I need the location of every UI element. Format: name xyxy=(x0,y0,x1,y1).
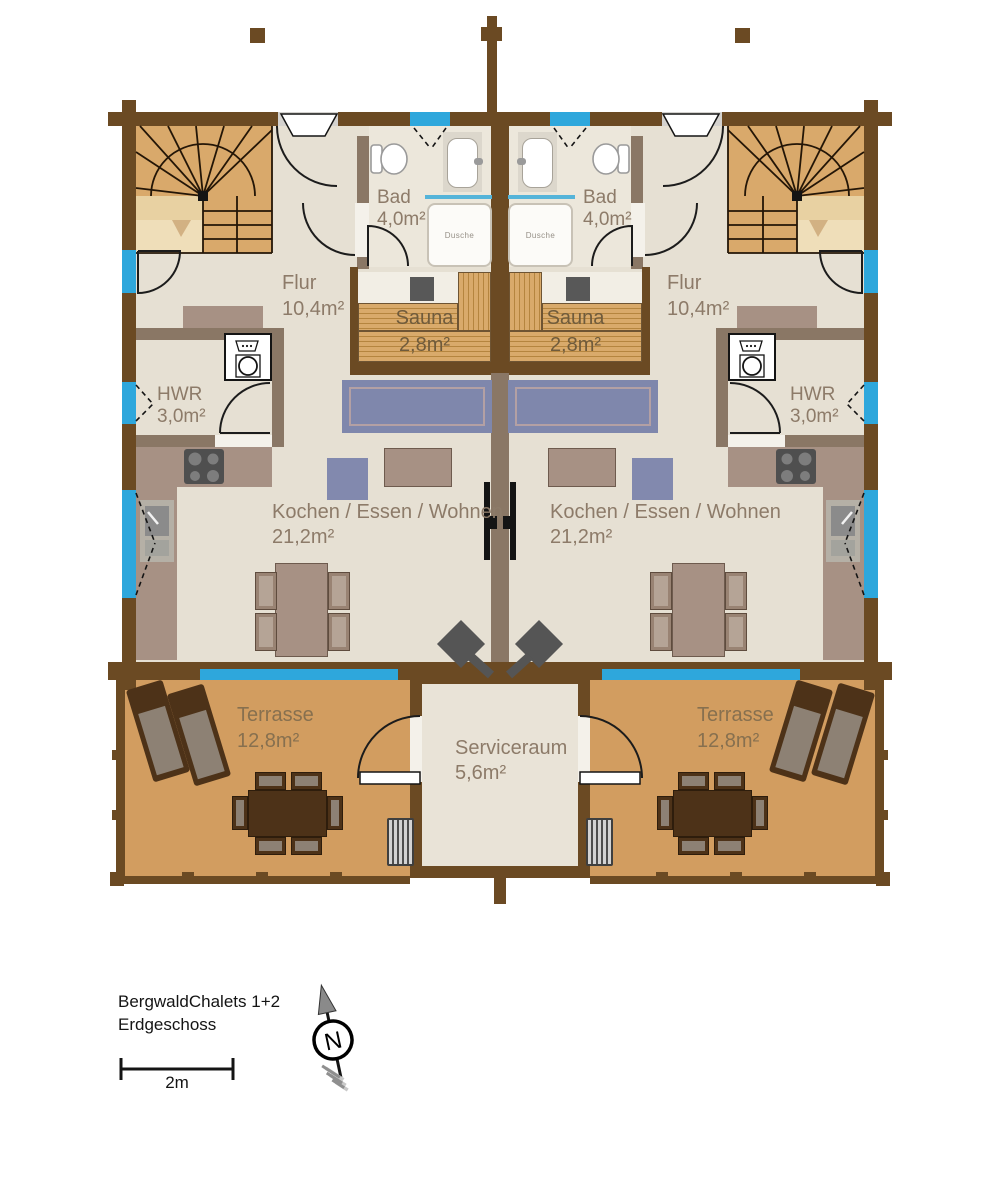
kitchen-sink-drainer xyxy=(831,540,855,556)
sofa-right xyxy=(508,380,658,433)
dining-chair xyxy=(255,613,277,651)
hwr-wall-top-left xyxy=(136,328,284,340)
kitchen-counter-left xyxy=(136,447,272,487)
bath-door-sill-right xyxy=(631,203,645,257)
room-area: 12,8m² xyxy=(237,728,314,754)
terrace-table-left xyxy=(248,790,327,837)
dining-chair xyxy=(725,572,747,610)
room-area: 2,8m² xyxy=(509,332,642,359)
dining-chair xyxy=(255,572,277,610)
dining-table-right xyxy=(672,563,725,657)
floor-plan: Dusche Dusche xyxy=(0,0,1000,1200)
entry-door-sill-right xyxy=(662,112,722,126)
terrace-chair xyxy=(657,796,673,830)
hwr-door-sill-right xyxy=(728,435,785,447)
scale-bar-label: 2m xyxy=(157,1073,197,1093)
sofa-cushion-line xyxy=(515,387,651,426)
terrace-chair xyxy=(714,837,745,855)
sauna-wall-bottom-right xyxy=(509,362,650,375)
kitchen-counter-right xyxy=(728,447,864,487)
chair-seat xyxy=(295,776,318,786)
terrace-table-right xyxy=(673,790,752,837)
side-table-right xyxy=(632,458,673,500)
railing-post xyxy=(112,810,122,820)
sofa-left xyxy=(342,380,492,433)
chair-seat xyxy=(661,800,669,826)
serviceroom-wall-right xyxy=(578,684,590,716)
chair-seat xyxy=(718,776,741,786)
room-area: 2,8m² xyxy=(358,332,491,359)
terrace-chair xyxy=(255,837,286,855)
sauna-wall-side-right xyxy=(642,267,650,373)
coffee-table-right xyxy=(548,448,616,487)
shower-label: Dusche xyxy=(526,231,556,240)
railing-post xyxy=(256,872,268,884)
sauna-anteroom-right xyxy=(542,272,642,303)
compass-north-label: N xyxy=(322,1026,345,1056)
room-label-hwr-right: HWR 3,0m² xyxy=(790,384,839,428)
shower-glass-left xyxy=(425,195,492,199)
chair-seat xyxy=(259,776,282,786)
party-wall-upper xyxy=(491,126,509,373)
chair-seat xyxy=(259,617,273,647)
shower-glass-right xyxy=(508,195,575,199)
plan-title: BergwaldChalets 1+2 Erdgeschoss xyxy=(118,990,280,1036)
railing-post xyxy=(878,810,888,820)
railing-post xyxy=(182,872,194,884)
wall-left xyxy=(122,293,136,382)
dining-chair xyxy=(650,572,672,610)
tv-mount-right xyxy=(503,516,510,529)
wall-left xyxy=(122,100,136,250)
room-name: Serviceraum xyxy=(455,736,567,761)
side-table-left xyxy=(327,458,368,500)
grill-left xyxy=(387,818,414,866)
window-hwr-left xyxy=(122,382,136,424)
serviceroom-door-sill-left xyxy=(410,716,422,782)
wall-top xyxy=(450,112,550,126)
plan-title-line2: Erdgeschoss xyxy=(118,1013,280,1036)
railing-left-terrace-side xyxy=(116,680,125,884)
room-name: Kochen / Essen / Wohnen xyxy=(550,500,781,525)
wall-left xyxy=(122,424,136,490)
room-name: Sauna xyxy=(358,305,491,332)
bath-wall-left xyxy=(357,136,369,203)
dining-chair xyxy=(650,613,672,651)
window-bath-right xyxy=(550,112,590,126)
chair-seat xyxy=(259,841,282,851)
wall-bottom xyxy=(108,662,200,680)
room-label-hwr-left: HWR 3,0m² xyxy=(157,384,206,428)
window-kitchen-left xyxy=(122,490,136,598)
serviceroom-wall-top xyxy=(410,662,590,684)
room-name: Terrasse xyxy=(237,702,314,728)
shower-right: Dusche xyxy=(508,203,573,267)
railing-post xyxy=(330,872,342,884)
kitchen-sink-basin xyxy=(145,506,169,536)
compass-circle xyxy=(310,1017,355,1062)
window-kitchen-right xyxy=(864,490,878,598)
window-stair-right xyxy=(864,250,878,293)
sideboard-right xyxy=(737,306,817,328)
faucet-left xyxy=(474,158,483,165)
serviceroom-wall-bottom xyxy=(410,866,590,878)
room-area: 10,4m² xyxy=(667,296,729,322)
railing-post xyxy=(804,872,816,884)
room-name: Bad xyxy=(377,187,426,209)
serviceroom-stub xyxy=(494,878,506,904)
window-hwr-right xyxy=(864,382,878,424)
compass: N xyxy=(303,981,363,1095)
sofa-cushion-line xyxy=(349,387,485,426)
faucet-right xyxy=(517,158,526,165)
room-label-flur-left: Flur 10,4m² xyxy=(282,270,344,322)
terrace-chair xyxy=(752,796,768,830)
chair-seat xyxy=(331,800,339,826)
kitchen-divider-right xyxy=(785,435,864,447)
compass-feather xyxy=(322,1062,344,1091)
chair-seat xyxy=(259,576,273,606)
terrace-chair xyxy=(327,796,343,830)
hwr-wall-top-right xyxy=(716,328,864,340)
chair-seat xyxy=(236,800,244,826)
chair-seat xyxy=(332,576,346,606)
room-name: Sauna xyxy=(509,305,642,332)
dining-chair xyxy=(725,613,747,651)
terrace-chair xyxy=(291,837,322,855)
plan-title-line1: BergwaldChalets 1+2 xyxy=(118,990,280,1013)
dining-table-left xyxy=(275,563,328,657)
railing-post xyxy=(110,872,124,886)
chimney-cap xyxy=(481,27,502,41)
shower-left: Dusche xyxy=(427,203,492,267)
sink-right xyxy=(522,138,553,188)
serviceroom-door-sill-right xyxy=(578,716,590,782)
sauna-heater-left xyxy=(410,277,434,301)
chair-seat xyxy=(682,841,705,851)
room-label-serviceraum: Serviceraum 5,6m² xyxy=(455,736,567,786)
railing-post xyxy=(112,750,122,760)
room-label-wohnen-right: Kochen / Essen / Wohnen 21,2m² xyxy=(550,500,781,550)
wall-top xyxy=(590,112,662,126)
roof-post-right xyxy=(735,28,750,43)
kitchen-sink-basin xyxy=(831,506,855,536)
room-name: Terrasse xyxy=(697,702,774,728)
window-bath-left xyxy=(410,112,450,126)
room-name: HWR xyxy=(790,384,839,406)
compass-arrowhead xyxy=(313,983,336,1014)
room-label-sauna-left: Sauna 2,8m² xyxy=(358,305,491,359)
room-area: 3,0m² xyxy=(790,406,839,428)
bath-wall-left-stub xyxy=(357,257,369,269)
room-area: 21,2m² xyxy=(272,525,503,550)
glass-door-living-right xyxy=(602,669,800,680)
room-name: HWR xyxy=(157,384,206,406)
wall-bottom xyxy=(602,662,800,669)
entry-door-sill-left xyxy=(278,112,338,126)
stair-landing-right-lower xyxy=(797,220,864,253)
room-area: 21,2m² xyxy=(550,525,781,550)
sauna-heater-right xyxy=(566,277,590,301)
hwr-door-sill-left xyxy=(215,435,272,447)
room-area: 4,0m² xyxy=(583,209,632,231)
bath-wall-right xyxy=(631,136,643,203)
dining-chair xyxy=(328,572,350,610)
room-label-flur-right: Flur 10,4m² xyxy=(667,270,729,322)
wall-right xyxy=(864,424,878,490)
wall-right xyxy=(864,293,878,382)
shower-label: Dusche xyxy=(445,231,475,240)
room-name: Flur xyxy=(282,270,344,296)
wall-right xyxy=(864,100,878,250)
terrace-chair xyxy=(714,772,745,790)
terrace-chair xyxy=(291,772,322,790)
room-label-terrasse-left: Terrasse 12,8m² xyxy=(237,702,314,754)
railing-right-terrace-side xyxy=(875,680,884,884)
railing-post xyxy=(878,750,888,760)
railing-post xyxy=(730,872,742,884)
chair-seat xyxy=(729,576,743,606)
chair-seat xyxy=(654,576,668,606)
chair-seat xyxy=(729,617,743,647)
kitchen-sink-drainer xyxy=(145,540,169,556)
chair-seat xyxy=(718,841,741,851)
sauna-wall-bottom-left xyxy=(350,362,491,375)
chair-seat xyxy=(295,841,318,851)
room-name: Flur xyxy=(667,270,729,296)
terrace-chair xyxy=(678,772,709,790)
room-label-sauna-right: Sauna 2,8m² xyxy=(509,305,642,359)
tv-right xyxy=(510,482,516,560)
chair-seat xyxy=(332,617,346,647)
chair-seat xyxy=(756,800,764,826)
coffee-table-left xyxy=(384,448,452,487)
wall-bottom xyxy=(200,662,398,669)
hwr-wall-side-left xyxy=(272,340,284,447)
terrace-chair xyxy=(232,796,248,830)
railing-post xyxy=(876,872,890,886)
room-area: 5,6m² xyxy=(455,761,567,786)
wall-bottom xyxy=(800,662,892,680)
chair-seat xyxy=(654,617,668,647)
dining-chair xyxy=(328,613,350,651)
terrace-chair xyxy=(678,837,709,855)
room-area: 12,8m² xyxy=(697,728,774,754)
hwr-wall-side-right xyxy=(716,340,728,447)
bath-door-sill-left xyxy=(355,203,369,257)
chair-seat xyxy=(682,776,705,786)
wall-top xyxy=(338,112,410,126)
kitchen-divider-left xyxy=(136,435,215,447)
room-label-wohnen-left: Kochen / Essen / Wohnen 21,2m² xyxy=(272,500,503,550)
sauna-wall-side-left xyxy=(350,267,358,373)
serviceroom-wall-left xyxy=(410,684,422,716)
terrace-chair xyxy=(255,772,286,790)
room-area: 4,0m² xyxy=(377,209,426,231)
room-name: Kochen / Essen / Wohnen xyxy=(272,500,503,525)
sideboard-left xyxy=(183,306,263,328)
room-name: Bad xyxy=(583,187,632,209)
railing-post xyxy=(656,872,668,884)
grill-right xyxy=(586,818,613,866)
stair-landing-left-lower xyxy=(136,220,203,253)
sauna-anteroom-left xyxy=(358,272,458,303)
room-label-bad-left: Bad 4,0m² xyxy=(377,187,426,231)
room-label-bad-right: Bad 4,0m² xyxy=(583,187,632,231)
room-label-terrasse-right: Terrasse 12,8m² xyxy=(697,702,774,754)
roof-post-left xyxy=(250,28,265,43)
window-stair-left xyxy=(122,250,136,293)
room-area: 3,0m² xyxy=(157,406,206,428)
glass-door-living-left xyxy=(200,669,398,680)
room-area: 10,4m² xyxy=(282,296,344,322)
